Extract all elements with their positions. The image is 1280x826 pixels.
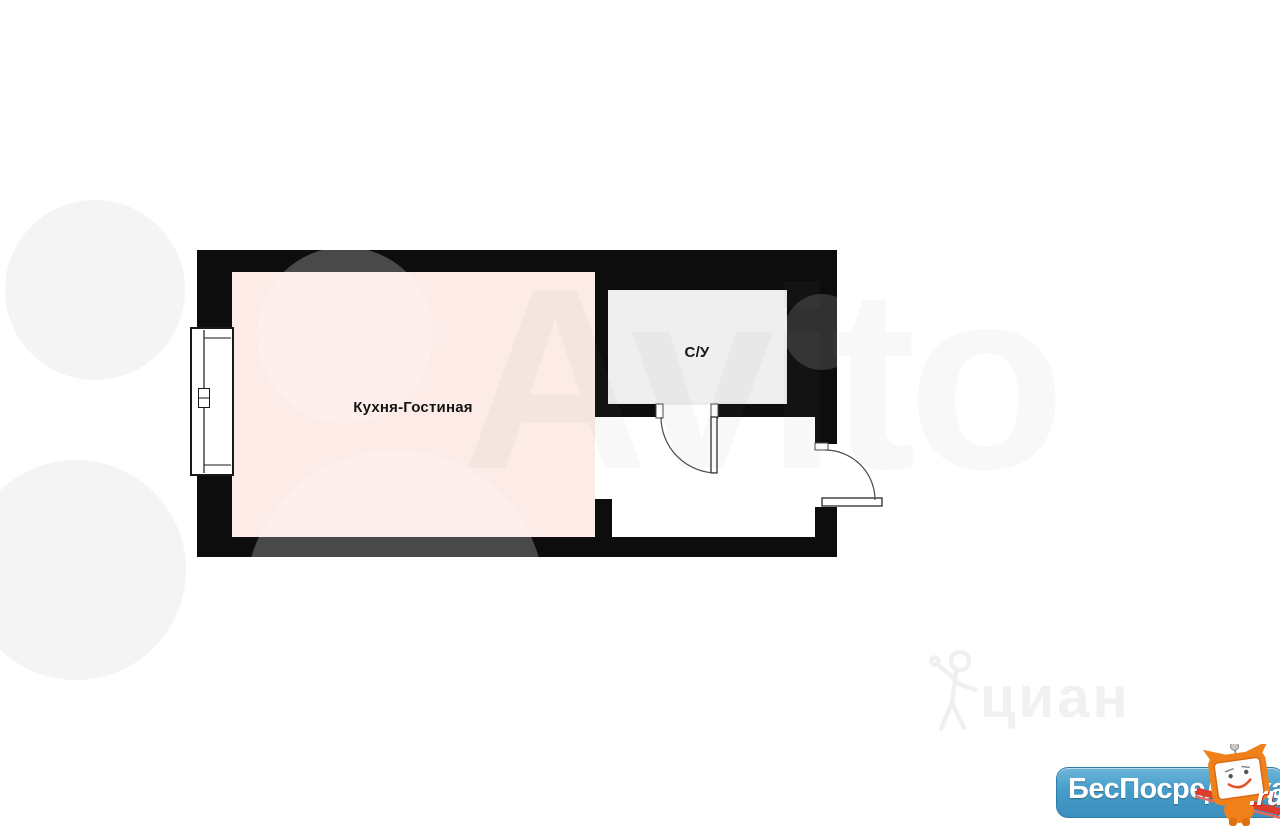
- avito-watermark-text: Avito: [462, 250, 1057, 508]
- floorplan-image: Avito Кухня-Гостиная С/У циан БесПосредн…: [0, 0, 1280, 821]
- watermark-circle: [0, 460, 186, 680]
- cian-person-icon: [926, 645, 986, 745]
- window-mullion-upper: [199, 389, 210, 399]
- watermark-circle: [257, 247, 433, 423]
- window-mullion-lower: [199, 398, 210, 408]
- window-frame: [191, 328, 233, 475]
- bathroom-label: С/У: [647, 344, 747, 361]
- logo-suffix-text: .ru: [1249, 781, 1280, 812]
- watermark-circle: [5, 200, 185, 380]
- window: [191, 328, 233, 475]
- kitchen-living-room-label: Кухня-Гостиная: [288, 399, 538, 416]
- cian-watermark-text: циан: [980, 664, 1131, 731]
- besposrednika-logo: БесПосредника: [1056, 765, 1280, 818]
